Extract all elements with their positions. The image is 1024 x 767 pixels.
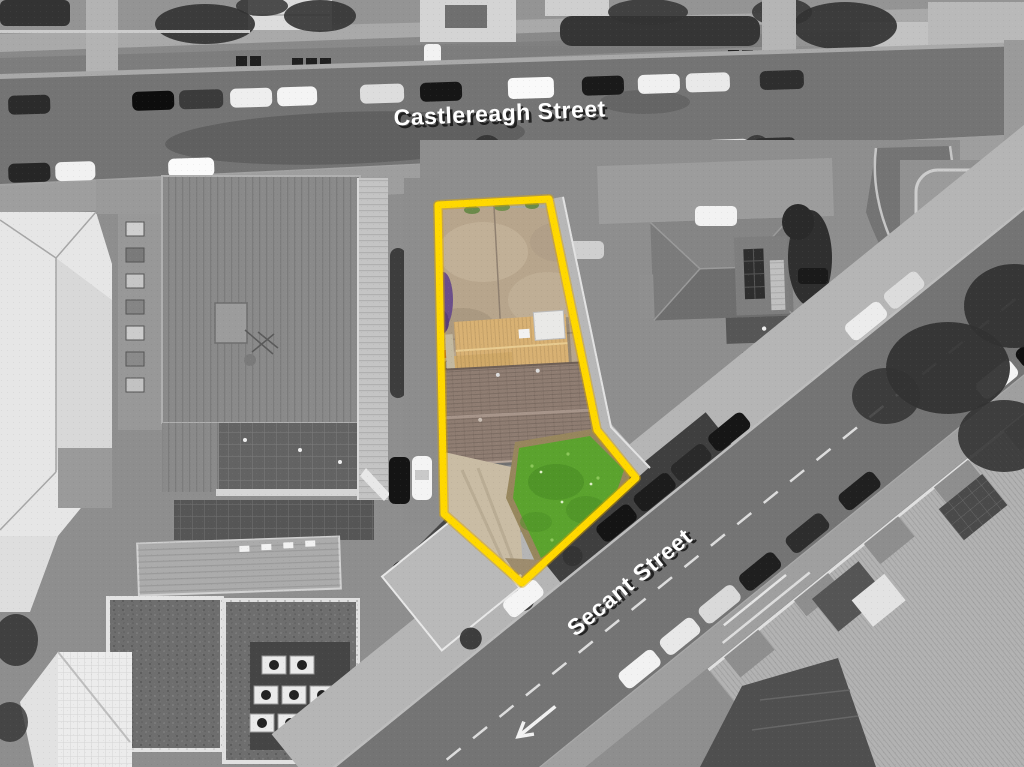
aerial-photo-stage: Castlereagh Street Castlereagh Street Se… [0, 0, 1024, 767]
aerial-photo: Castlereagh Street Castlereagh Street Se… [0, 0, 1024, 767]
